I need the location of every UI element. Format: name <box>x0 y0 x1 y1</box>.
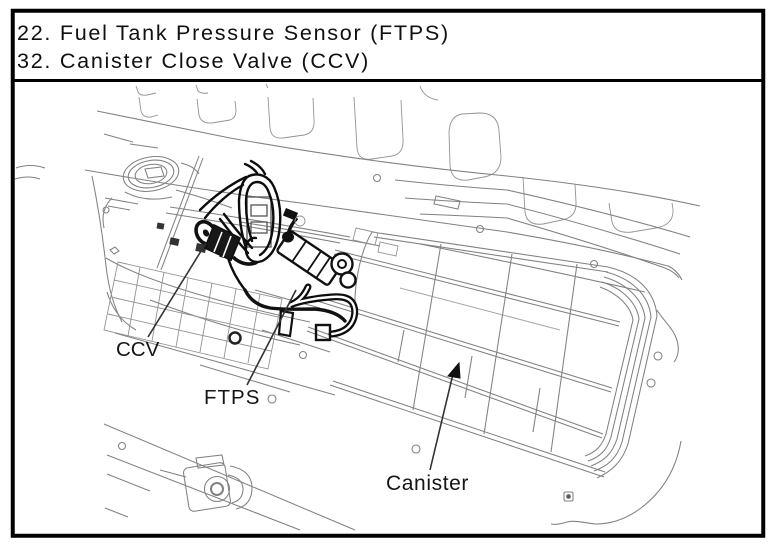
svg-text:22. Fuel Tank Pressure Sensor: 22. Fuel Tank Pressure Sensor (FTPS) <box>17 20 450 45</box>
svg-text:32. Canister Close Valve (CCV): 32. Canister Close Valve (CCV) <box>17 48 370 73</box>
svg-text:Canister: Canister <box>386 472 469 495</box>
svg-text:CCV: CCV <box>116 338 160 361</box>
svg-text:FTPS: FTPS <box>204 386 260 409</box>
